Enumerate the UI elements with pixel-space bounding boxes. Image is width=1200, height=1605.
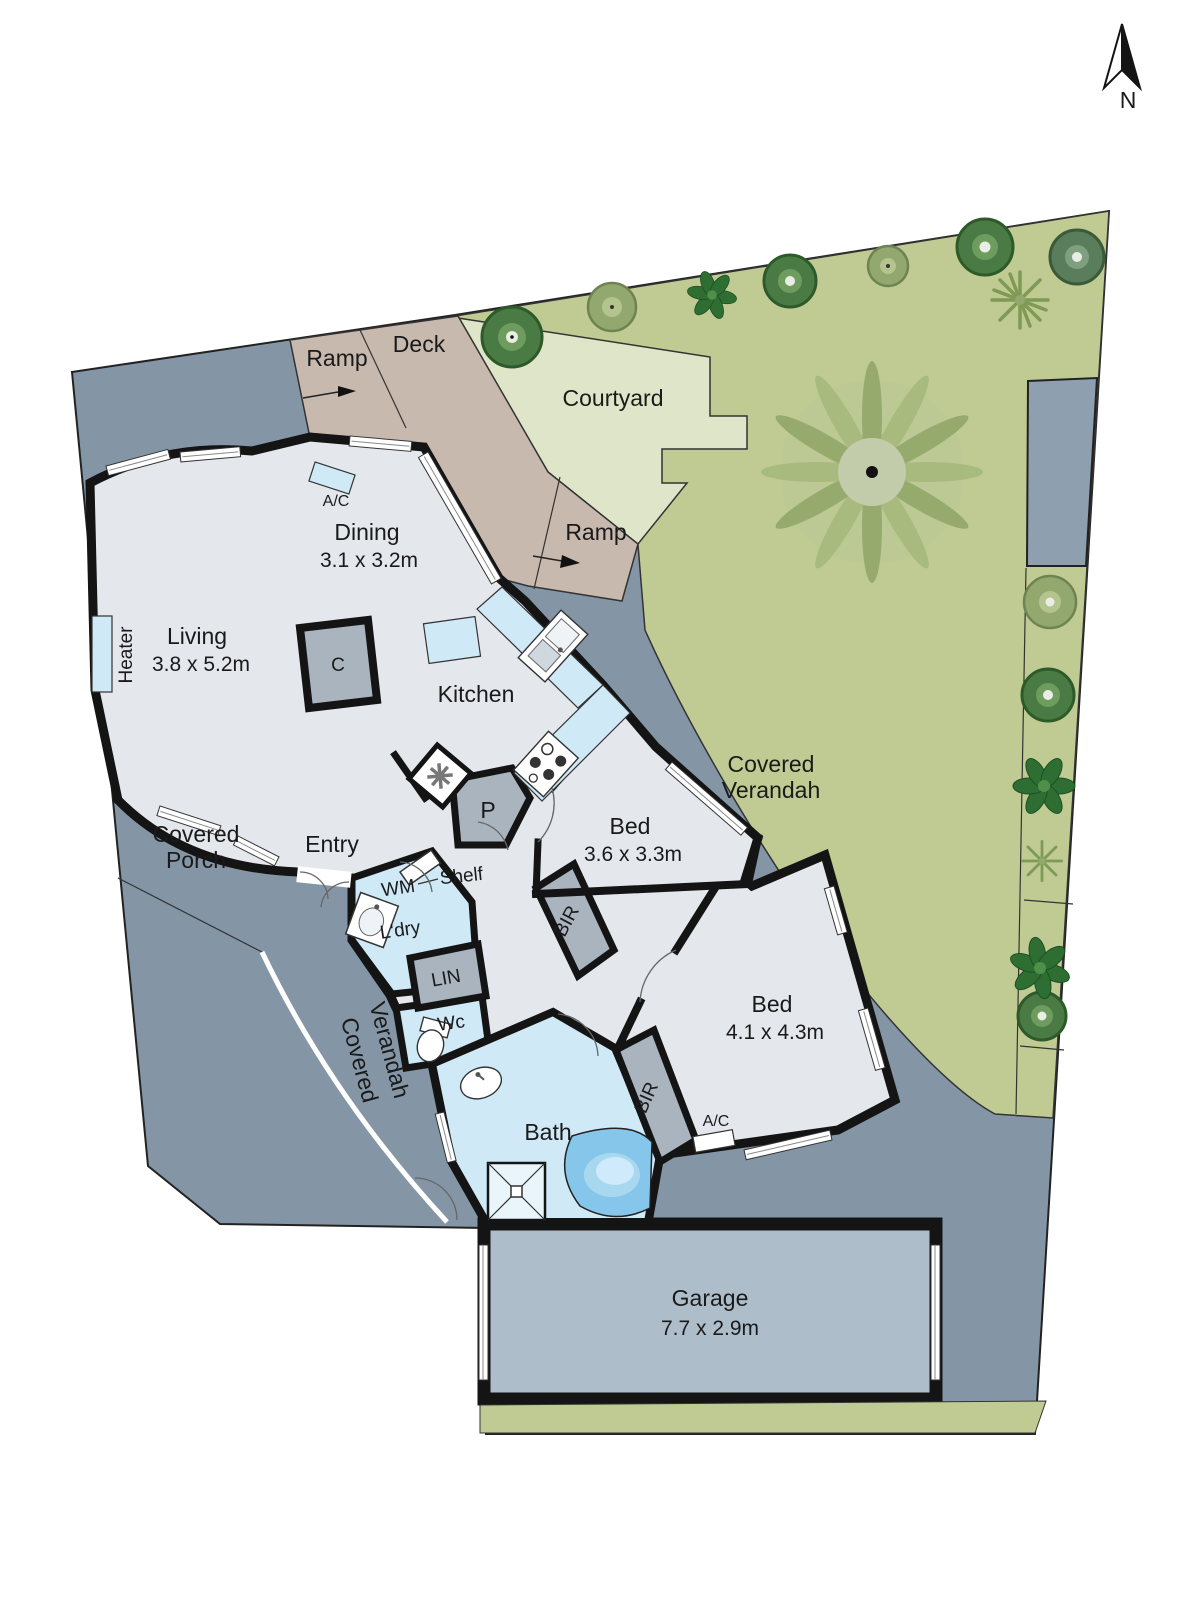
bed2-dims: 4.1 x 4.3m [726,1021,824,1044]
pantry-label: P [480,797,495,823]
bathtub-icon [565,1128,652,1216]
plant-icon [1022,841,1061,880]
north-arrow-icon [1104,24,1140,88]
bush-icon [1024,576,1076,628]
grass-strip [480,1401,1046,1433]
shed-area [1027,378,1097,566]
courtyard-label: Courtyard [563,385,664,411]
bush-icon [1022,669,1074,721]
wc-label: Wc [436,1011,466,1036]
kitchen-label: Kitchen [438,681,515,707]
ramp-mid-label: Ramp [565,519,626,545]
bush-icon [588,283,636,331]
heater-label: Heater [116,626,137,684]
garage-window-left [479,1245,488,1380]
bed1-label: Bed [610,813,651,839]
bed1-dims: 3.6 x 3.3m [584,843,682,866]
plant-icon [992,272,1048,328]
wall-bed1-hall2 [536,842,538,894]
heater-panel [92,616,112,692]
bush-icon [868,246,908,286]
bush-icon [764,255,816,307]
verandah-east-label-2: Verandah [722,777,820,803]
garage-dims: 7.7 x 2.9m [661,1317,759,1340]
dining-dims: 3.1 x 3.2m [320,549,418,572]
floorplan-canvas: N Ramp Deck Courtyard Ramp Covered Porch… [0,0,1200,1600]
porch-label-1: Covered [153,821,240,847]
bush-icon [1018,992,1066,1040]
bath-label: Bath [524,1119,571,1145]
garage-door-right [931,1245,940,1380]
bush-icon [1050,230,1104,284]
room-garage [484,1224,936,1399]
living-label: Living [167,623,227,649]
ramp-top-label: Ramp [306,345,367,371]
cupboard-label: C [331,655,345,676]
living-dims: 3.8 x 5.2m [152,653,250,676]
shower-icon [488,1163,545,1220]
bush-icon [482,307,542,367]
verandah-east-label-1: Covered [728,751,815,777]
bush-icon [957,219,1013,275]
north-label: N [1120,87,1137,113]
garage-label: Garage [672,1285,749,1311]
ac1-label: A/C [323,493,350,510]
kitchen-island [423,617,480,664]
porch-label-2: Porch [166,847,226,873]
entry-label: Entry [305,831,359,857]
floorplan-page: N Ramp Deck Courtyard Ramp Covered Porch… [0,0,1200,1600]
deck-label: Deck [393,331,446,357]
dining-label: Dining [334,519,399,545]
bed2-label: Bed [752,991,793,1017]
ac2-label: A/C [703,1113,730,1130]
